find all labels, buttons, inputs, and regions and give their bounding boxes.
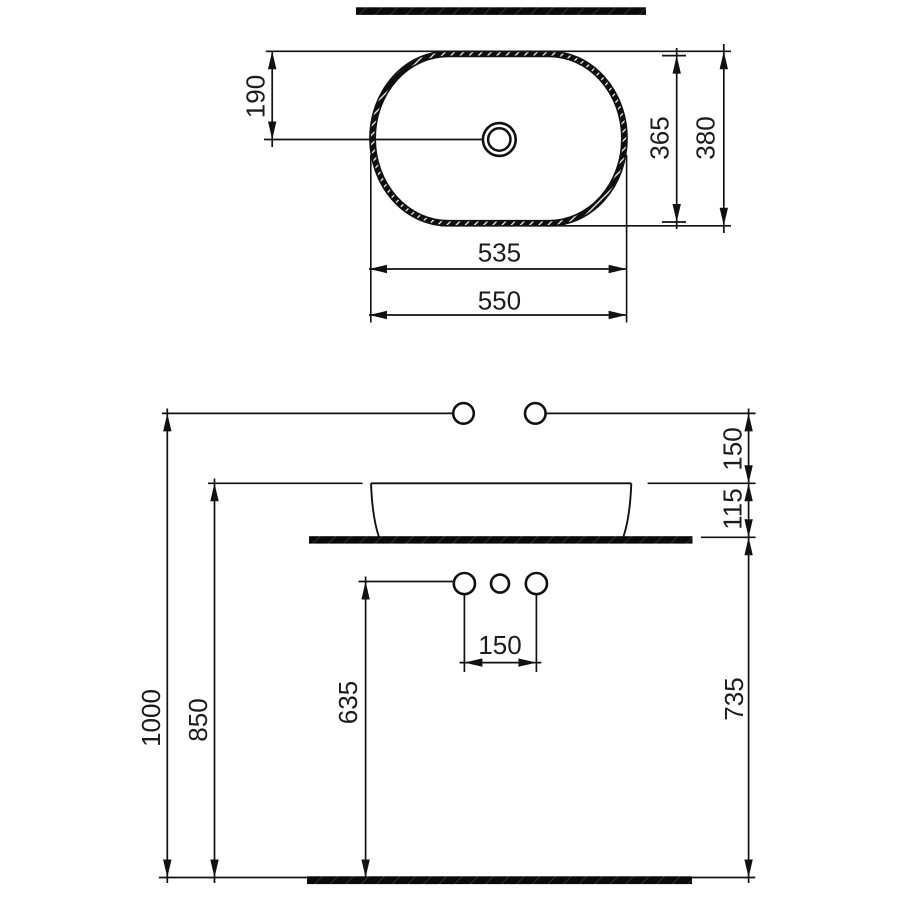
svg-text:550: 550 (478, 286, 521, 316)
svg-text:115: 115 (718, 488, 748, 529)
svg-text:535: 535 (478, 238, 521, 268)
svg-text:365: 365 (645, 116, 675, 159)
svg-text:1000: 1000 (136, 689, 166, 747)
svg-text:635: 635 (333, 681, 363, 724)
svg-text:190: 190 (241, 75, 271, 118)
svg-text:150: 150 (478, 630, 521, 660)
svg-text:150: 150 (718, 427, 748, 470)
svg-text:380: 380 (691, 116, 721, 159)
svg-text:850: 850 (183, 698, 213, 741)
svg-text:735: 735 (719, 677, 749, 720)
